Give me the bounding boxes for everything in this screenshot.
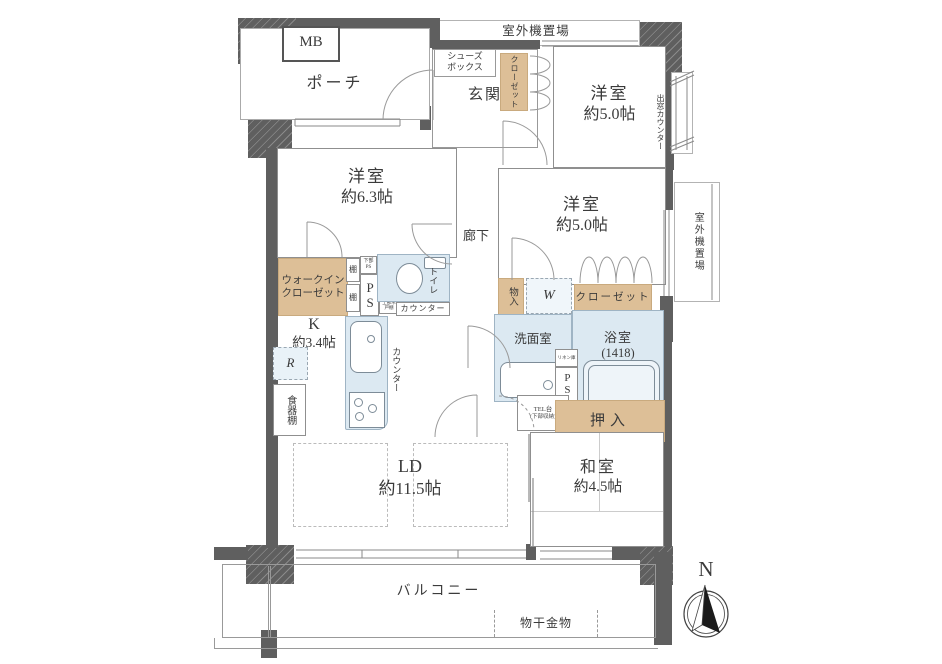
shelf-a: 棚 <box>346 258 360 282</box>
counter-a: カウンター <box>396 302 450 316</box>
wall <box>612 547 642 560</box>
outdoor-unit-area-right: 室外機置場 <box>674 182 720 302</box>
porch-label: ポーチ <box>240 74 430 94</box>
washer-space: W <box>526 278 572 314</box>
balcony-parapet-end <box>214 638 215 649</box>
stove-burner <box>355 412 364 421</box>
wall <box>214 547 248 560</box>
shelf-b: 棚 <box>346 284 360 312</box>
balcony-parapet-line <box>214 648 658 649</box>
walk-in-closet: ウォークイン クローゼット <box>278 258 348 316</box>
storage-box: 物入 <box>498 278 524 315</box>
stove-burner <box>368 404 377 413</box>
ld-label: LD 約11.5帖 <box>348 450 472 504</box>
linen-cabinet: リネン庫 <box>555 349 578 367</box>
fridge-space: R <box>273 347 308 380</box>
toilet-bowl <box>396 263 423 294</box>
floor-plan: 室外機置場 ポーチ MB シューズ ボックス 玄関 クローゼット 洋室 約5.0… <box>0 0 942 664</box>
western-room-c-label: 洋室 約5.0帖 <box>498 190 666 240</box>
washbasin-bowl <box>543 380 553 390</box>
shoes-box-label: シューズ ボックス <box>434 51 496 74</box>
toilet-label: トイレ <box>427 267 438 294</box>
wall <box>432 40 540 49</box>
balcony-label: バルコニー <box>222 583 656 601</box>
cupboard: 食器棚 <box>273 384 306 436</box>
balcony-divider <box>268 566 271 638</box>
washitsu-label: 和室 約4.5帖 <box>548 452 648 502</box>
entrance-closet-label: クローゼット <box>509 55 519 109</box>
kitchen-stove <box>349 392 385 428</box>
washbasin <box>500 362 562 398</box>
western-room-b-label: 洋室 約6.3帖 <box>277 162 457 212</box>
bay-counter-label: 出窓カウンター <box>655 80 665 164</box>
meter-box-label: MB <box>282 33 340 52</box>
kitchen-sink <box>350 321 382 373</box>
wall <box>654 552 672 645</box>
counter-b-label: カウンター <box>390 340 401 398</box>
laundry-label: 物干金物 <box>494 616 598 631</box>
outdoor-unit-right-label: 室外機置場 <box>691 212 704 272</box>
compass-icon <box>681 584 731 640</box>
closet-c: クローゼット <box>574 284 652 312</box>
entrance-closet: クローゼット <box>500 53 528 111</box>
corridor-label: 廊下 <box>456 228 496 244</box>
kitchen-faucet <box>367 335 375 343</box>
bay-window <box>671 72 693 154</box>
outdoor-unit-top-label: 室外機置場 <box>432 24 640 40</box>
north-label: N <box>688 556 724 582</box>
lower-ps: 下部PS <box>360 256 377 274</box>
tatami-line <box>531 511 663 512</box>
washroom-label: 洗面室 <box>494 332 572 348</box>
stove-burner <box>354 398 363 407</box>
western-room-a-label: 洋室 約5.0帖 <box>553 78 666 130</box>
